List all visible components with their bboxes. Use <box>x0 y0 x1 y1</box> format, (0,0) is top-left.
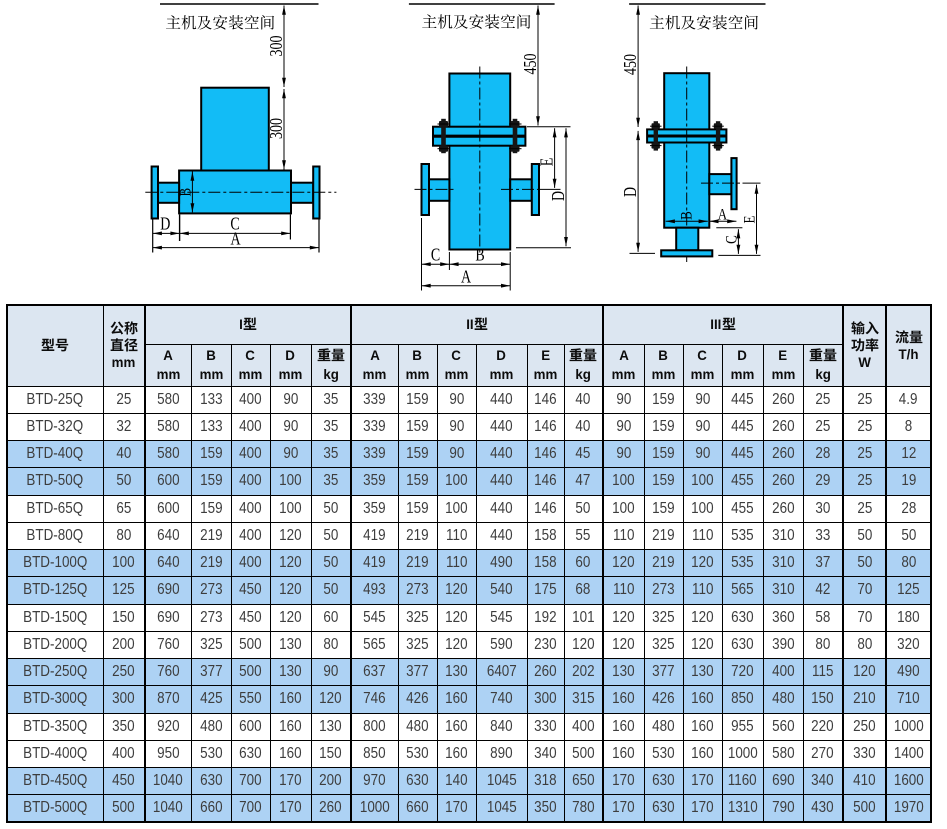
svg-text:D: D <box>160 215 170 234</box>
svg-text:300: 300 <box>268 35 287 56</box>
svg-text:B: B <box>475 246 484 265</box>
svg-text:300: 300 <box>268 118 287 139</box>
svg-text:A: A <box>230 230 241 249</box>
svg-text:B: B <box>177 188 195 197</box>
svg-text:E: E <box>538 158 557 167</box>
svg-text:C: C <box>723 235 741 244</box>
svg-text:C: C <box>431 246 440 265</box>
svg-text:450: 450 <box>622 54 641 75</box>
svg-text:A: A <box>461 268 472 287</box>
svg-text:E: E <box>741 216 759 224</box>
svg-text:B: B <box>678 211 696 220</box>
svg-text:D: D <box>550 191 569 201</box>
svg-text:A: A <box>718 206 728 224</box>
svg-text:450: 450 <box>522 53 541 74</box>
svg-text:D: D <box>622 187 641 197</box>
